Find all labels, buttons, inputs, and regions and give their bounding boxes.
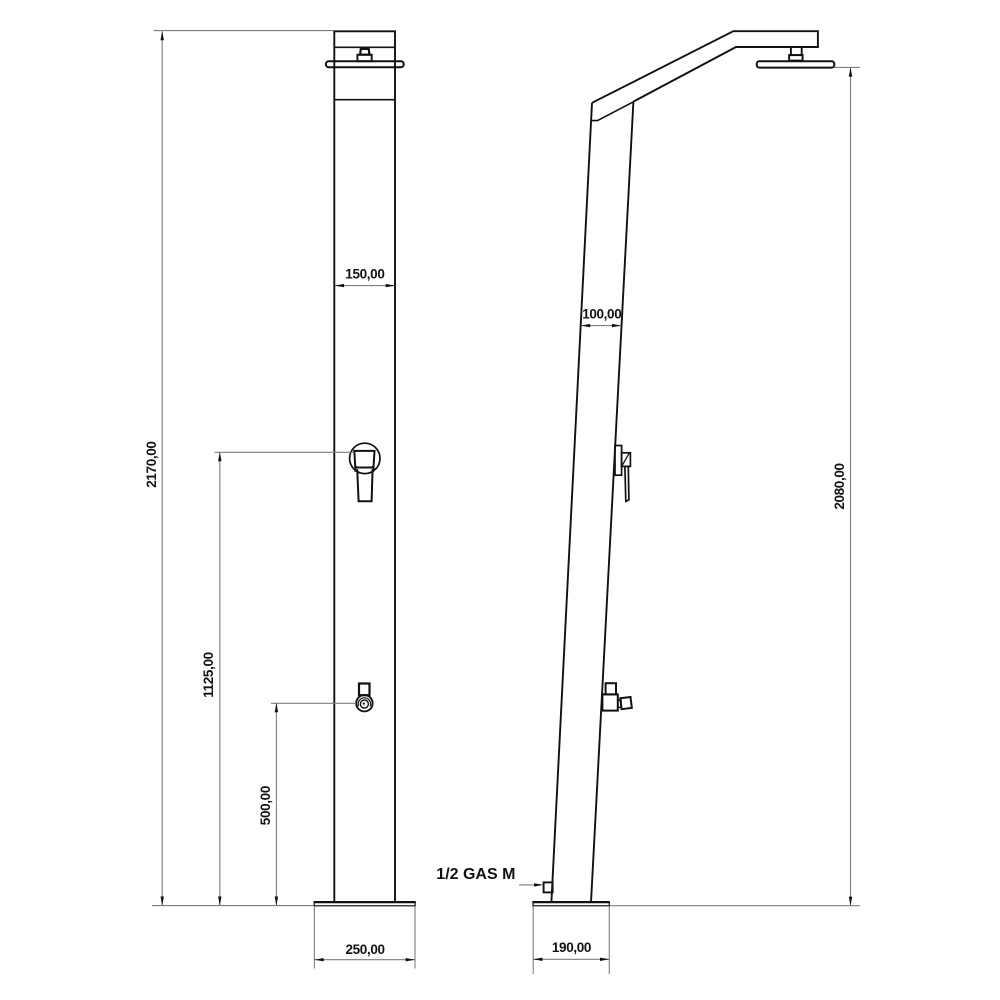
svg-text:2170,00: 2170,00 [144, 441, 159, 487]
svg-text:2080,00: 2080,00 [832, 463, 847, 509]
svg-text:250,00: 250,00 [345, 942, 384, 957]
svg-text:150,00: 150,00 [345, 267, 384, 282]
svg-text:500,00: 500,00 [258, 786, 273, 825]
svg-text:190,00: 190,00 [552, 940, 591, 955]
svg-text:1/2 GAS M: 1/2 GAS M [436, 866, 515, 883]
svg-text:1125,00: 1125,00 [201, 652, 216, 698]
svg-text:100,00: 100,00 [582, 307, 621, 322]
